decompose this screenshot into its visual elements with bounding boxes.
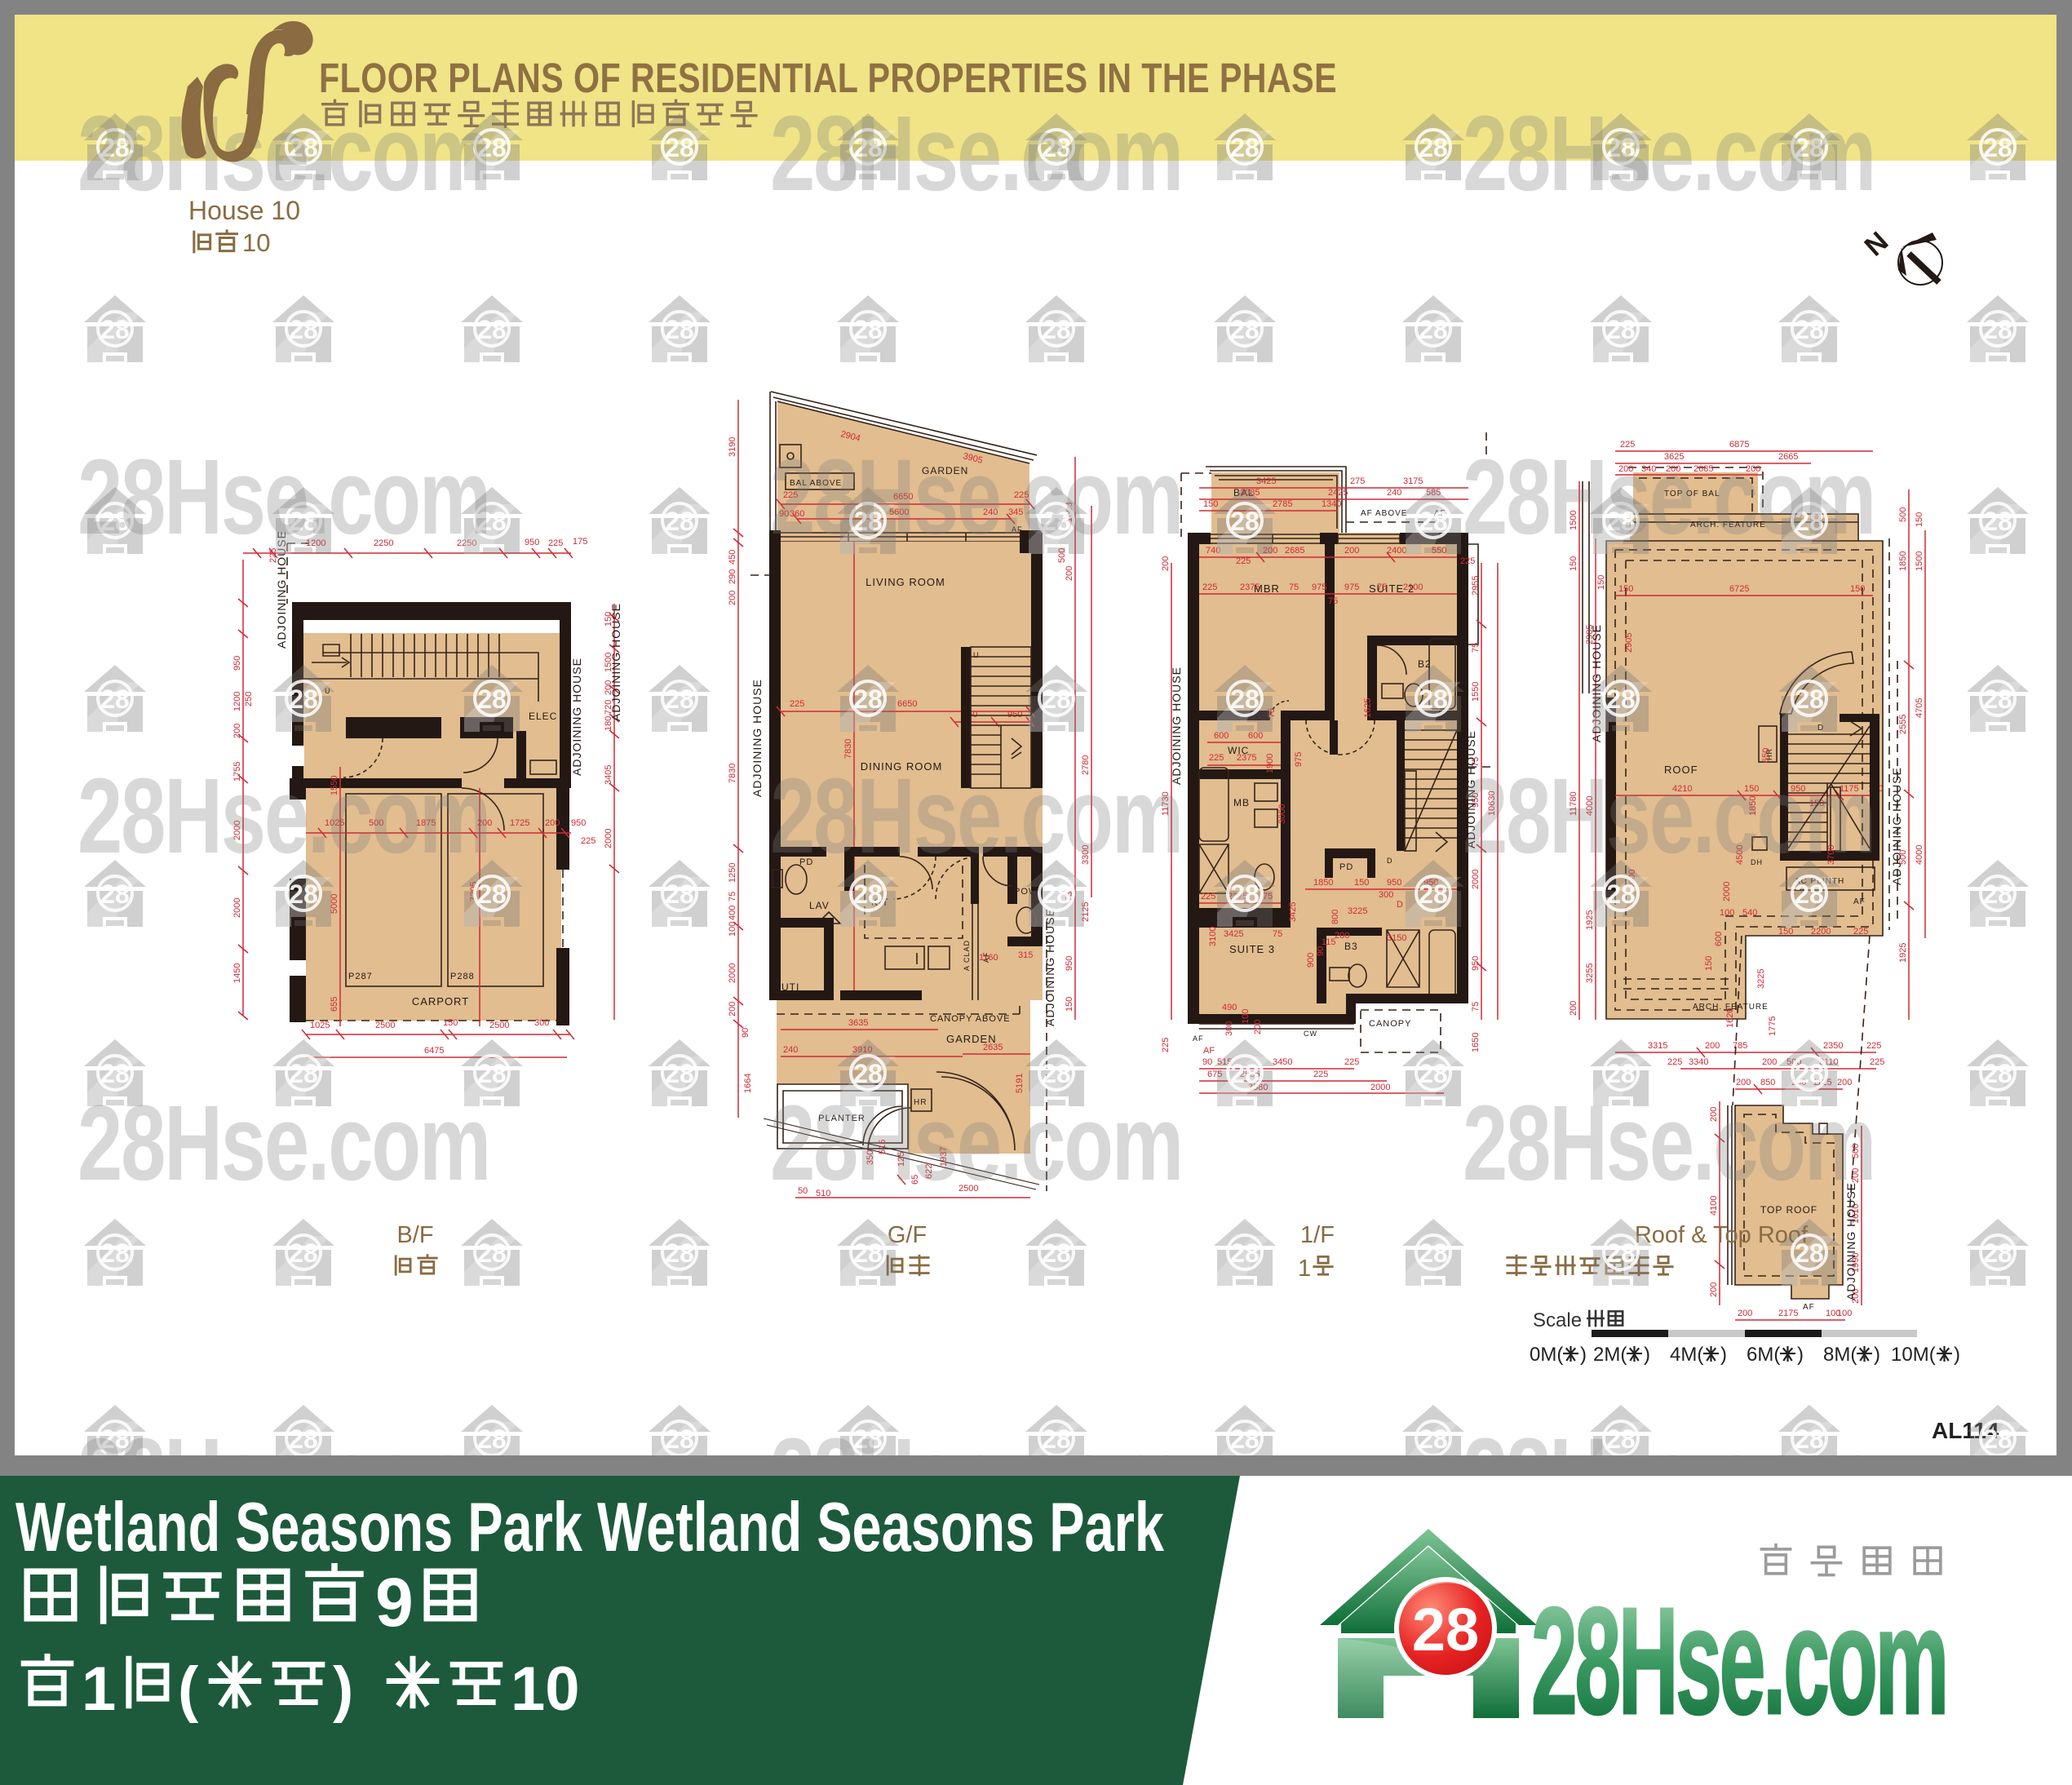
svg-text:): ) <box>333 1654 353 1724</box>
svg-text:Wetland Seasons Park Wetland S: Wetland Seasons Park Wetland Seasons Par… <box>15 1489 1165 1566</box>
svg-text:28Hse.com: 28Hse.com <box>770 436 1182 556</box>
svg-text:28Hse.com: 28Hse.com <box>77 755 489 875</box>
svg-text:28Hse.com: 28Hse.com <box>770 1083 1182 1203</box>
svg-text:(: ( <box>178 1654 199 1724</box>
svg-text:FLOOR PLANS OF RESIDENTIAL PRO: FLOOR PLANS OF RESIDENTIAL PROPERTIES IN… <box>319 55 1337 101</box>
svg-text:28Hse.com: 28Hse.com <box>77 1083 489 1203</box>
svg-text:28Hse.com: 28Hse.com <box>1531 1577 1946 1746</box>
svg-text:10: 10 <box>242 228 270 257</box>
svg-text:House 10: House 10 <box>188 196 300 225</box>
svg-text:28Hse.com: 28Hse.com <box>1463 436 1875 556</box>
svg-text:9: 9 <box>375 1564 414 1641</box>
svg-text:1: 1 <box>82 1654 116 1724</box>
svg-text:28: 28 <box>1412 1596 1479 1663</box>
svg-text:28Hse.com: 28Hse.com <box>1463 1083 1875 1203</box>
svg-text:28Hse.com: 28Hse.com <box>770 755 1182 875</box>
svg-text:28Hse.com: 28Hse.com <box>1463 755 1875 875</box>
svg-text:28Hse.com: 28Hse.com <box>77 436 489 556</box>
svg-text:10: 10 <box>511 1654 580 1724</box>
